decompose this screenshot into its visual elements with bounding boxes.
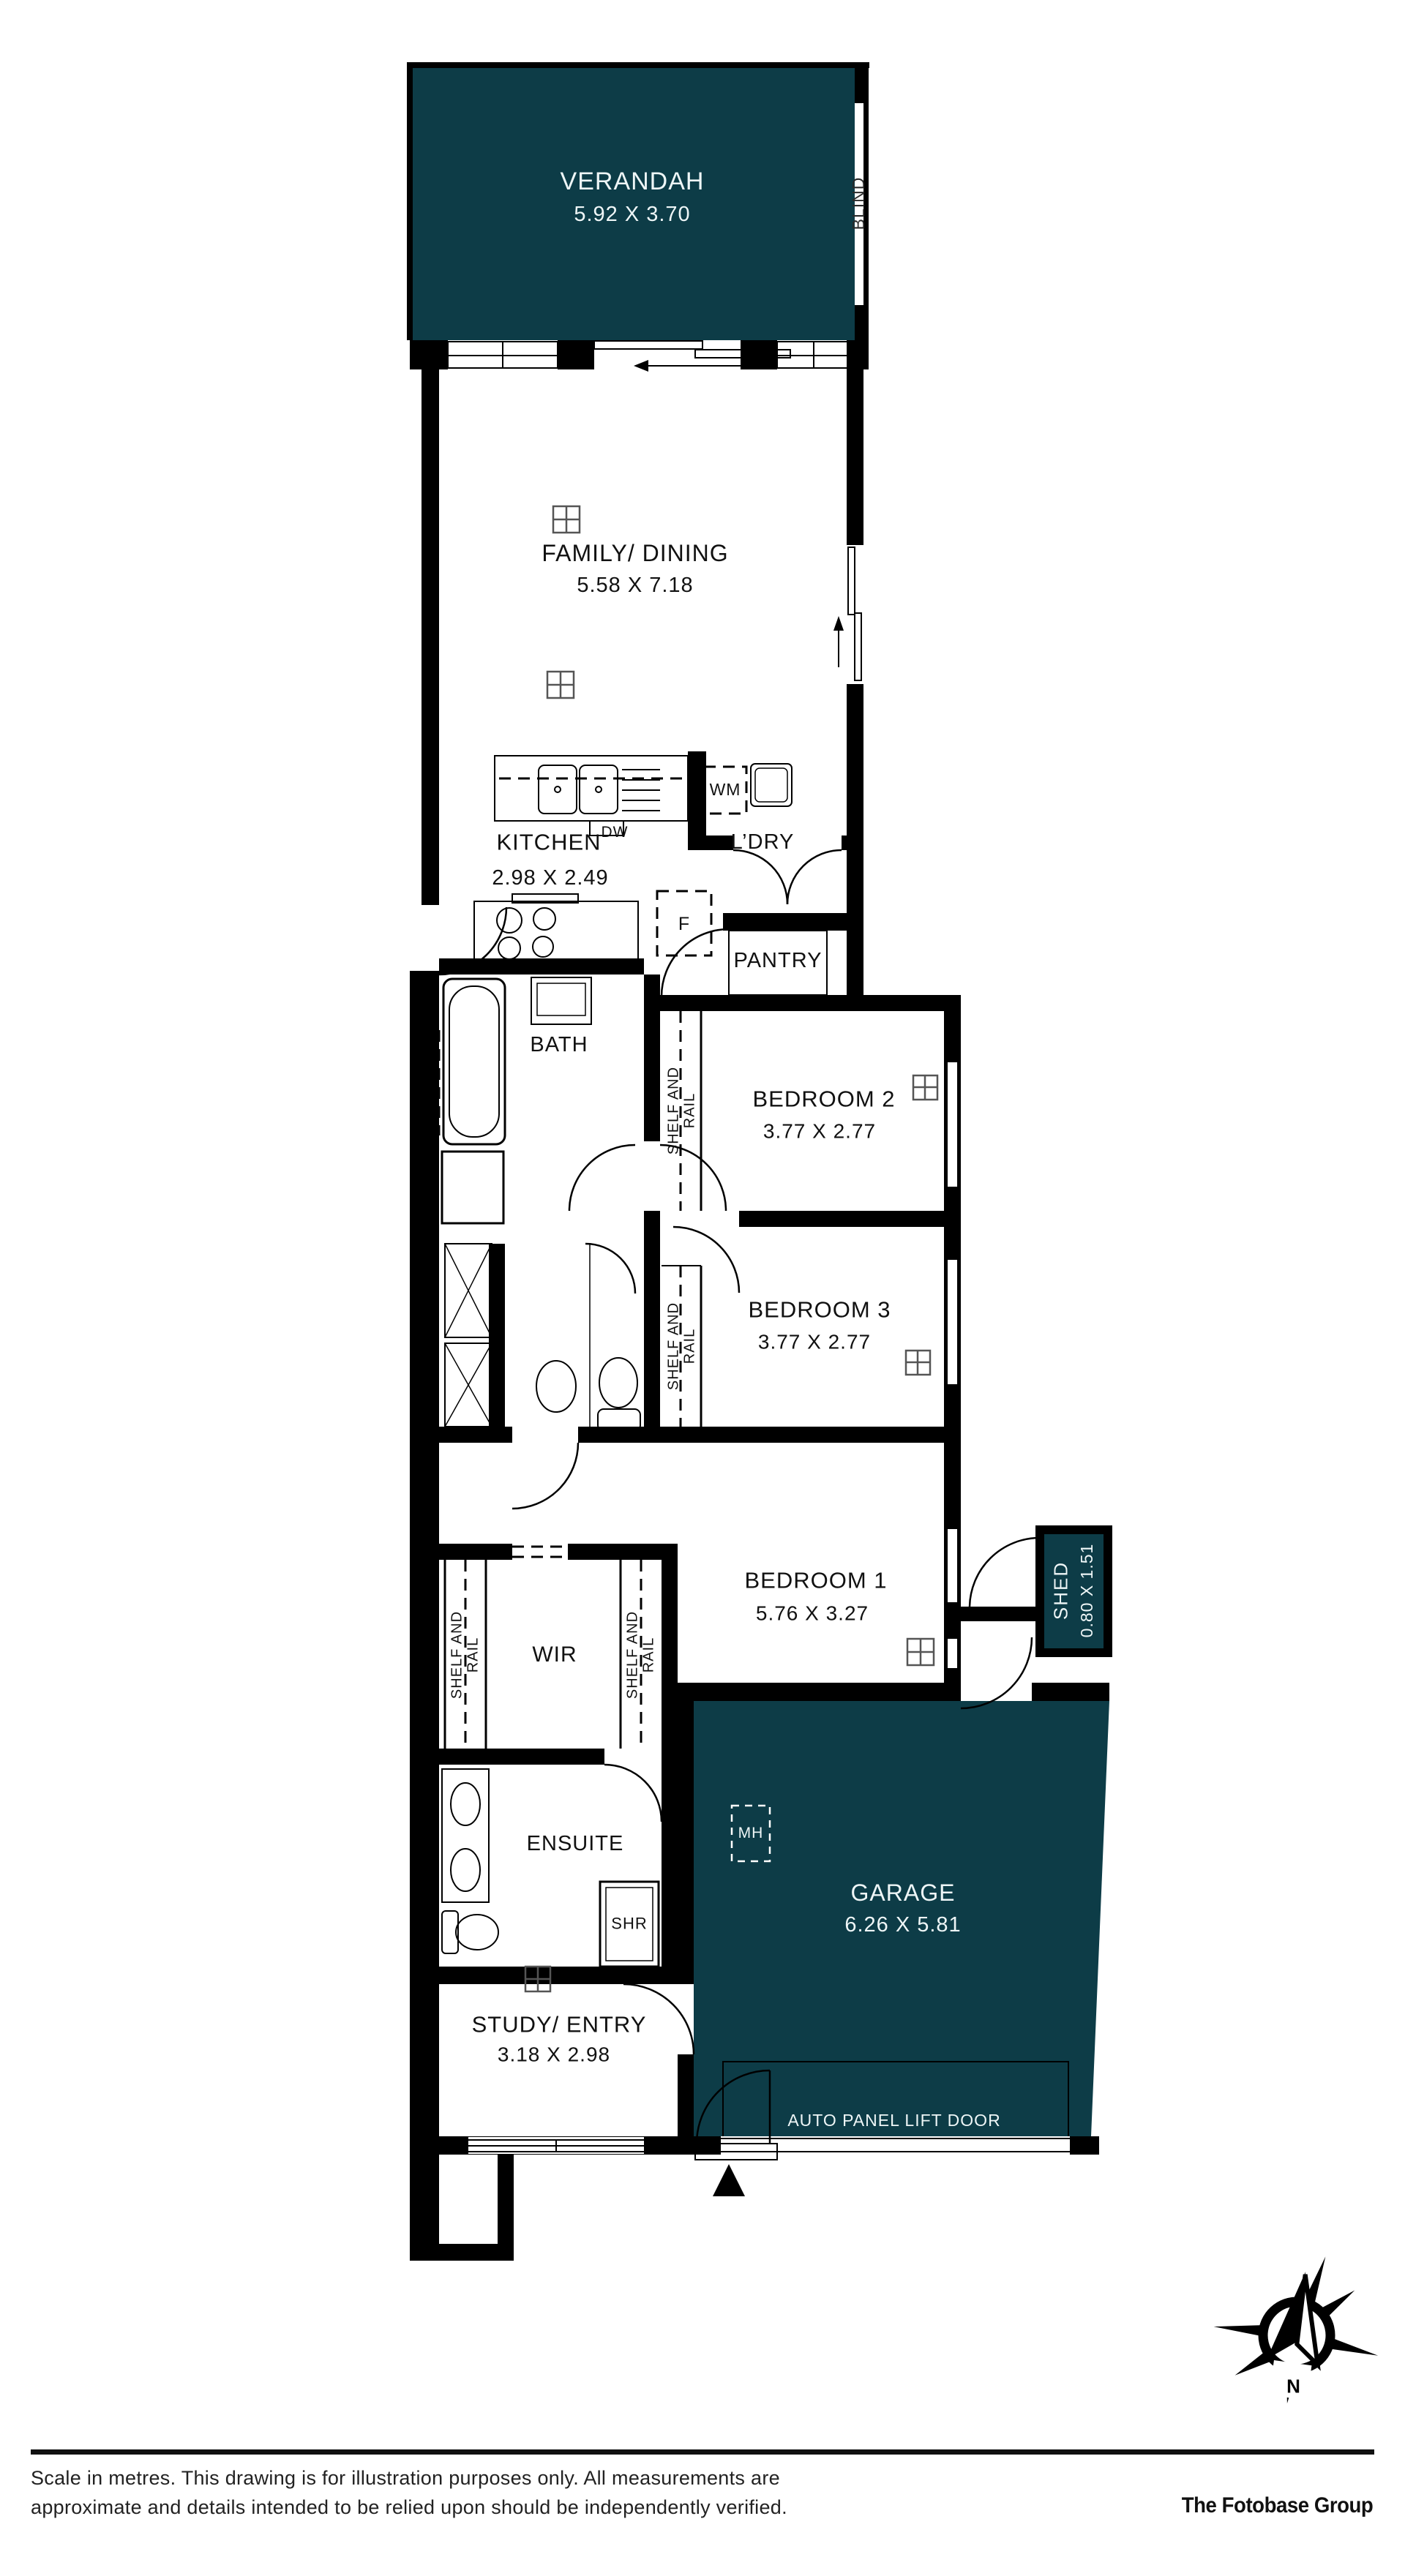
blind-label: BLIND (850, 177, 869, 230)
room-dims-kitchen: 2.98 X 2.49 (492, 866, 608, 890)
room-label-bedroom1: BEDROOM 1 (744, 1569, 887, 1594)
room-label-shed: SHED (1050, 1561, 1071, 1620)
room-label-study-entry: STUDY/ ENTRY (472, 2013, 647, 2038)
room-label-ensuite: ENSUITE (527, 1832, 624, 1855)
room-label-garage: GARAGE (851, 1880, 956, 1907)
shower-label: SHR (611, 1915, 647, 1934)
floorplan-drawing (0, 0, 1405, 2576)
disclaimer-line-1: Scale in metres. This drawing is for ill… (31, 2467, 780, 2490)
room-label-family-dining: FAMILY/ DINING (542, 541, 728, 567)
bathroom-fixtures (442, 977, 659, 1967)
room-dims-bedroom3: 3.77 X 2.77 (758, 1330, 871, 1353)
room-label-pantry: PANTRY (734, 949, 823, 972)
dishwasher-label: DW (602, 824, 629, 841)
fotobase-group-logo: The Fotobase Group (1181, 2493, 1373, 2518)
compass-north-label: N (1286, 2376, 1301, 2397)
manhole-label: MH (738, 1825, 764, 1842)
room-dims-bedroom2: 3.77 X 2.77 (763, 1119, 876, 1142)
shelf-rail-label-bed3: SHELF AND RAIL (666, 1298, 699, 1394)
disclaimer-line-2: approximate and details intended to be r… (31, 2496, 787, 2519)
room-label-laundry: L’DRY (731, 830, 795, 854)
shelf-rail-label-wir-right: SHELF AND RAIL (625, 1607, 658, 1703)
room-label-verandah: VERANDAH (561, 168, 705, 195)
washing-machine-label: WM (710, 781, 741, 800)
floorplan-page: VERANDAH 5.92 X 3.70 BLIND FAMILY/ DININ… (0, 0, 1405, 2576)
room-dims-shed: 0.80 X 1.51 (1078, 1544, 1097, 1638)
room-dims-family-dining: 5.58 X 7.18 (577, 574, 693, 597)
garage-door-label: AUTO PANEL LIFT DOOR (787, 2111, 1000, 2130)
fridge-label: F (678, 914, 690, 934)
footer-divider (31, 2449, 1374, 2455)
shelf-rail-label-wir-left: SHELF AND RAIL (449, 1607, 482, 1703)
room-label-bedroom3: BEDROOM 3 (748, 1298, 891, 1323)
shelf-rail-label-bed2: SHELF AND RAIL (666, 1062, 699, 1159)
shed-area (1035, 1525, 1112, 1657)
room-dims-verandah: 5.92 X 3.70 (574, 203, 690, 226)
room-label-wir: WIR (532, 1642, 577, 1667)
room-dims-bedroom1: 5.76 X 3.27 (756, 1601, 869, 1624)
room-label-bath: BATH (530, 1033, 588, 1056)
room-dims-study-entry: 3.18 X 2.98 (498, 2043, 610, 2065)
room-label-kitchen: KITCHEN (496, 830, 601, 856)
room-label-bedroom2: BEDROOM 2 (752, 1087, 895, 1113)
room-dims-garage: 6.26 X 5.81 (844, 1913, 961, 1937)
